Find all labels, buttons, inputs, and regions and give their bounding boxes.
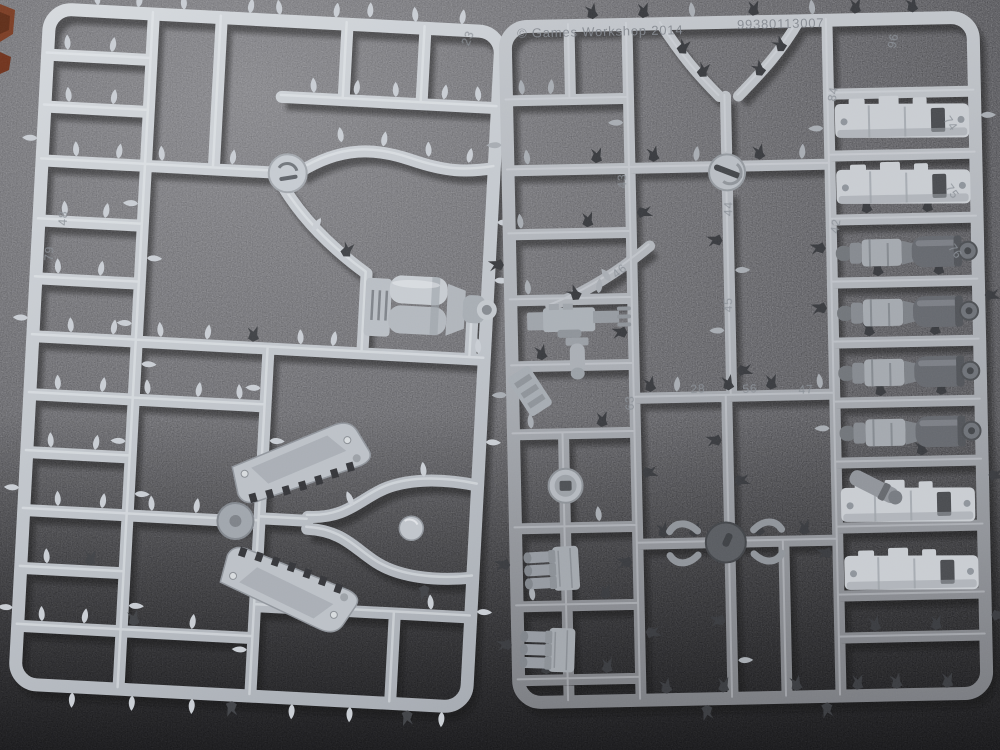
photo-grain-overlay <box>0 0 1000 750</box>
sprue-photo: 48 79 23 <box>0 0 1000 750</box>
